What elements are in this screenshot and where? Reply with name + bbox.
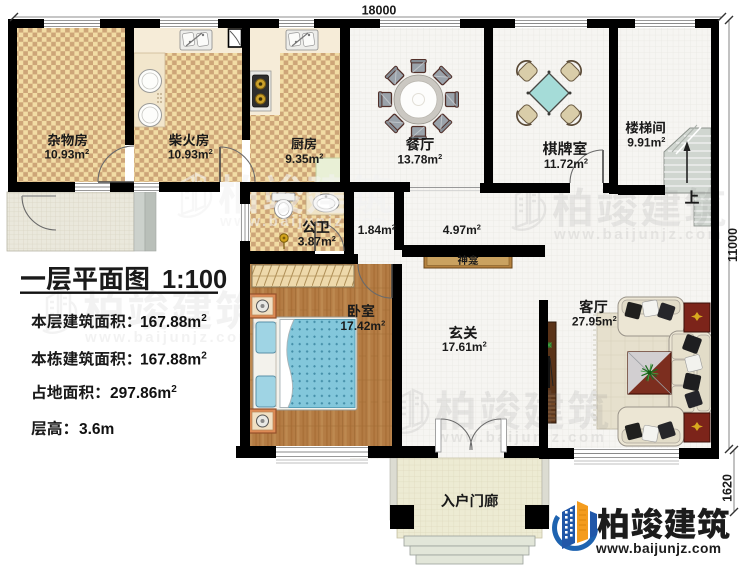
svg-text:297.86m2: 297.86m2: [110, 384, 177, 402]
svg-text:1:100: 1:100: [162, 266, 227, 294]
svg-text:11.72m2: 11.72m2: [544, 156, 588, 171]
svg-text:1620: 1620: [721, 474, 735, 502]
svg-text:9.35m2: 9.35m2: [285, 151, 323, 166]
svg-text:4.97m2: 4.97m2: [443, 222, 481, 237]
svg-text:167.88m2: 167.88m2: [140, 313, 207, 331]
svg-text:13.78m2: 13.78m2: [397, 152, 442, 167]
svg-text:www.baijunjz.com: www.baijunjz.com: [595, 541, 721, 556]
svg-text:17.42m2: 17.42m2: [340, 318, 385, 333]
svg-text:10.93m2: 10.93m2: [44, 147, 89, 162]
svg-text:167.88m2: 167.88m2: [140, 351, 207, 369]
svg-text:3.87m2: 3.87m2: [298, 234, 336, 249]
svg-text:27.95m2: 27.95m2: [572, 314, 617, 329]
svg-text:10.93m2: 10.93m2: [168, 147, 213, 162]
svg-text:1.84m2: 1.84m2: [358, 222, 396, 237]
svg-text:9.91m2: 9.91m2: [627, 135, 665, 150]
svg-text:11000: 11000: [726, 228, 740, 262]
svg-text:18000: 18000: [362, 4, 397, 18]
svg-text:3.6m: 3.6m: [79, 421, 114, 438]
svg-text:17.61m2: 17.61m2: [442, 339, 487, 354]
